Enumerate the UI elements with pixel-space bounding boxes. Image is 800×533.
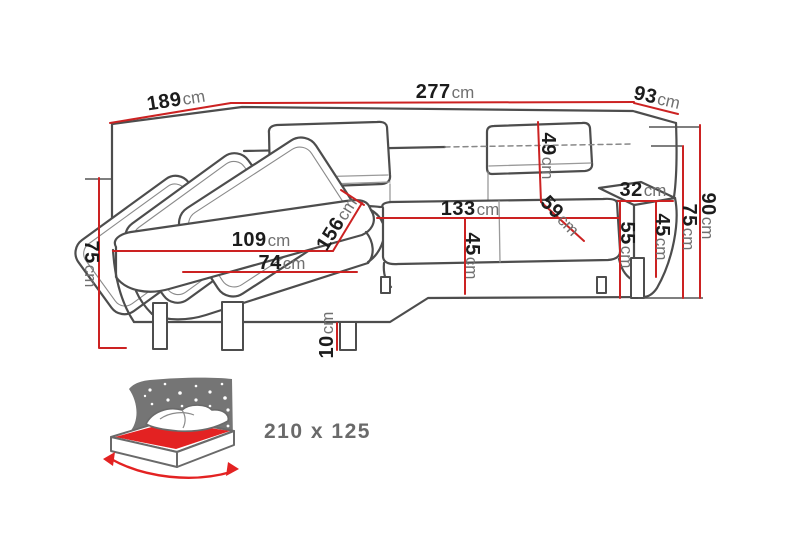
- leg-front-left: [153, 303, 167, 349]
- dim-line-total-width: [231, 102, 634, 103]
- sleeping-area-size-label: 210 x 125: [264, 420, 371, 444]
- seat-cushions: [382, 199, 631, 287]
- arrowhead-right: [226, 462, 239, 476]
- leg-back-middle: [381, 277, 390, 293]
- sofa-outline: [69, 107, 676, 350]
- seat-cushion-block: [382, 199, 620, 264]
- bed-icon: [103, 378, 239, 478]
- leg-front-middle: [340, 322, 356, 350]
- sofa-diagram-svg: [0, 0, 800, 533]
- dim-line-back-depth-left: [110, 103, 231, 123]
- leg-front-right: [631, 258, 644, 298]
- sofa-base-bottom-edge: [134, 297, 646, 322]
- sofa-dimension-diagram: 189cm 277cm 93cm 90cm 75cm 32cm 45cm 55c…: [0, 0, 800, 533]
- leg-back-right: [597, 277, 606, 293]
- armrest-outer-curve: [643, 198, 677, 297]
- arrowhead-left: [103, 452, 115, 466]
- leg-mid-left: [222, 302, 243, 350]
- sofa-bed-shape: [111, 405, 234, 467]
